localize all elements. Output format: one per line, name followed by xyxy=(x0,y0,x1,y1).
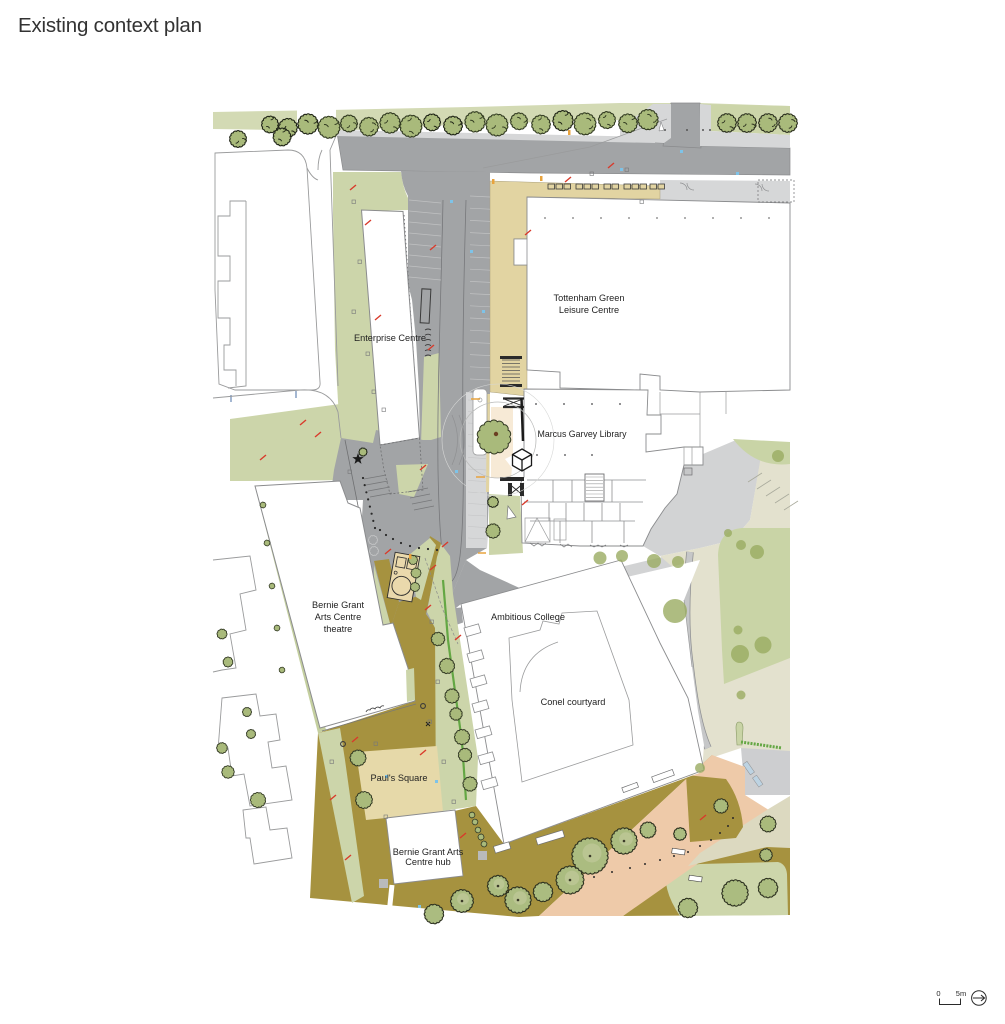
svg-text:Enterprise Centre: Enterprise Centre xyxy=(354,333,426,343)
svg-text:0: 0 xyxy=(936,989,940,998)
svg-text:Centre hub: Centre hub xyxy=(405,857,450,867)
svg-text:Tottenham Green: Tottenham Green xyxy=(554,293,625,303)
svg-text:Bernie Grant: Bernie Grant xyxy=(312,600,365,610)
svg-text:Arts Centre: Arts Centre xyxy=(315,612,361,622)
svg-text:Paul's Square: Paul's Square xyxy=(371,773,428,783)
svg-text:Marcus Garvey Library: Marcus Garvey Library xyxy=(538,429,628,439)
svg-text:theatre: theatre xyxy=(324,624,353,634)
svg-text:5m: 5m xyxy=(956,989,966,998)
svg-text:Leisure Centre: Leisure Centre xyxy=(559,305,619,315)
svg-text:Bernie Grant Arts: Bernie Grant Arts xyxy=(393,847,464,857)
svg-text:Conel courtyard: Conel courtyard xyxy=(541,697,606,707)
svg-text:Existing context plan: Existing context plan xyxy=(18,14,202,37)
svg-text:Ambitious College: Ambitious College xyxy=(491,612,565,622)
